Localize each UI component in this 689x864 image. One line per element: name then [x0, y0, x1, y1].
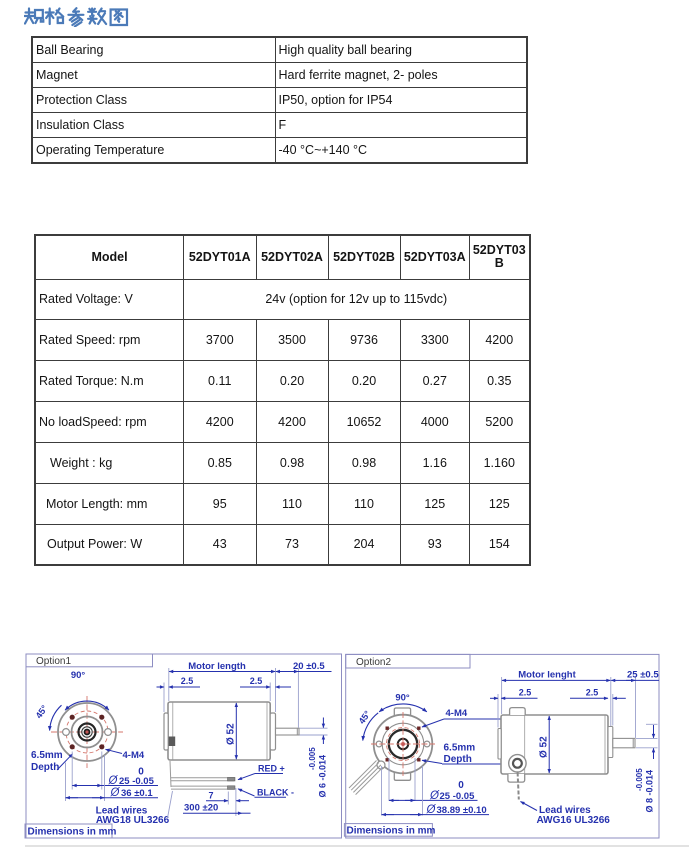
svg-text:45°: 45° — [34, 703, 50, 720]
svg-text:0: 0 — [458, 780, 464, 791]
svg-text:Ø: Ø — [110, 787, 121, 799]
svg-text:4-M4: 4-M4 — [123, 750, 145, 761]
svg-text:6.5mm: 6.5mm — [31, 750, 63, 761]
svg-text:Ø: Ø — [108, 775, 119, 787]
svg-text:7: 7 — [208, 790, 213, 800]
svg-text:Ø 52: Ø 52 — [226, 723, 237, 745]
svg-text:Ø 6 -0.014: Ø 6 -0.014 — [318, 755, 328, 798]
svg-text:2.5: 2.5 — [250, 676, 263, 686]
svg-text:-0.005: -0.005 — [308, 747, 317, 770]
svg-text:Ø 8 -0.014: Ø 8 -0.014 — [645, 770, 655, 813]
svg-text:Ø 52: Ø 52 — [539, 736, 550, 758]
svg-text:38.89 ±0.10: 38.89 ±0.10 — [437, 805, 487, 816]
svg-text:Ø: Ø — [429, 790, 440, 802]
svg-text:2.5: 2.5 — [519, 688, 532, 698]
svg-text:300 ±20: 300 ±20 — [184, 803, 218, 814]
svg-text:BLACK -: BLACK - — [257, 788, 294, 798]
svg-text:Depth: Depth — [444, 754, 472, 765]
svg-text:25 -0.05: 25 -0.05 — [440, 791, 476, 802]
svg-text:25 ±0.5: 25 ±0.5 — [627, 670, 659, 681]
svg-text:Motor length: Motor length — [188, 661, 246, 672]
svg-text:90°: 90° — [395, 693, 410, 704]
svg-text:Dimensions in mm: Dimensions in mm — [347, 826, 436, 837]
svg-text:Depth: Depth — [31, 762, 59, 773]
svg-text:RED +: RED + — [258, 764, 285, 774]
svg-text:Ø: Ø — [426, 804, 437, 816]
svg-text:2.5: 2.5 — [586, 688, 599, 698]
svg-text:6.5mm: 6.5mm — [444, 743, 476, 754]
svg-text:Dimensions in mm: Dimensions in mm — [28, 827, 117, 838]
svg-text:4-M4: 4-M4 — [446, 708, 468, 719]
svg-text:45°: 45° — [357, 709, 373, 726]
svg-text:AWG18 UL3266: AWG18 UL3266 — [96, 815, 170, 826]
svg-text:36 ±0.1: 36 ±0.1 — [121, 788, 153, 799]
svg-text:20 ±0.5: 20 ±0.5 — [293, 661, 325, 672]
svg-text:90°: 90° — [71, 670, 86, 681]
svg-text:Option2: Option2 — [356, 657, 391, 668]
svg-text:2.5: 2.5 — [181, 676, 194, 686]
svg-text:Option1: Option1 — [36, 656, 71, 667]
svg-text:Motor lenght: Motor lenght — [518, 670, 576, 681]
svg-text:25 -0.05: 25 -0.05 — [119, 776, 155, 787]
svg-text:-0.005: -0.005 — [635, 768, 644, 791]
svg-text:AWG16 UL3266: AWG16 UL3266 — [537, 815, 611, 826]
